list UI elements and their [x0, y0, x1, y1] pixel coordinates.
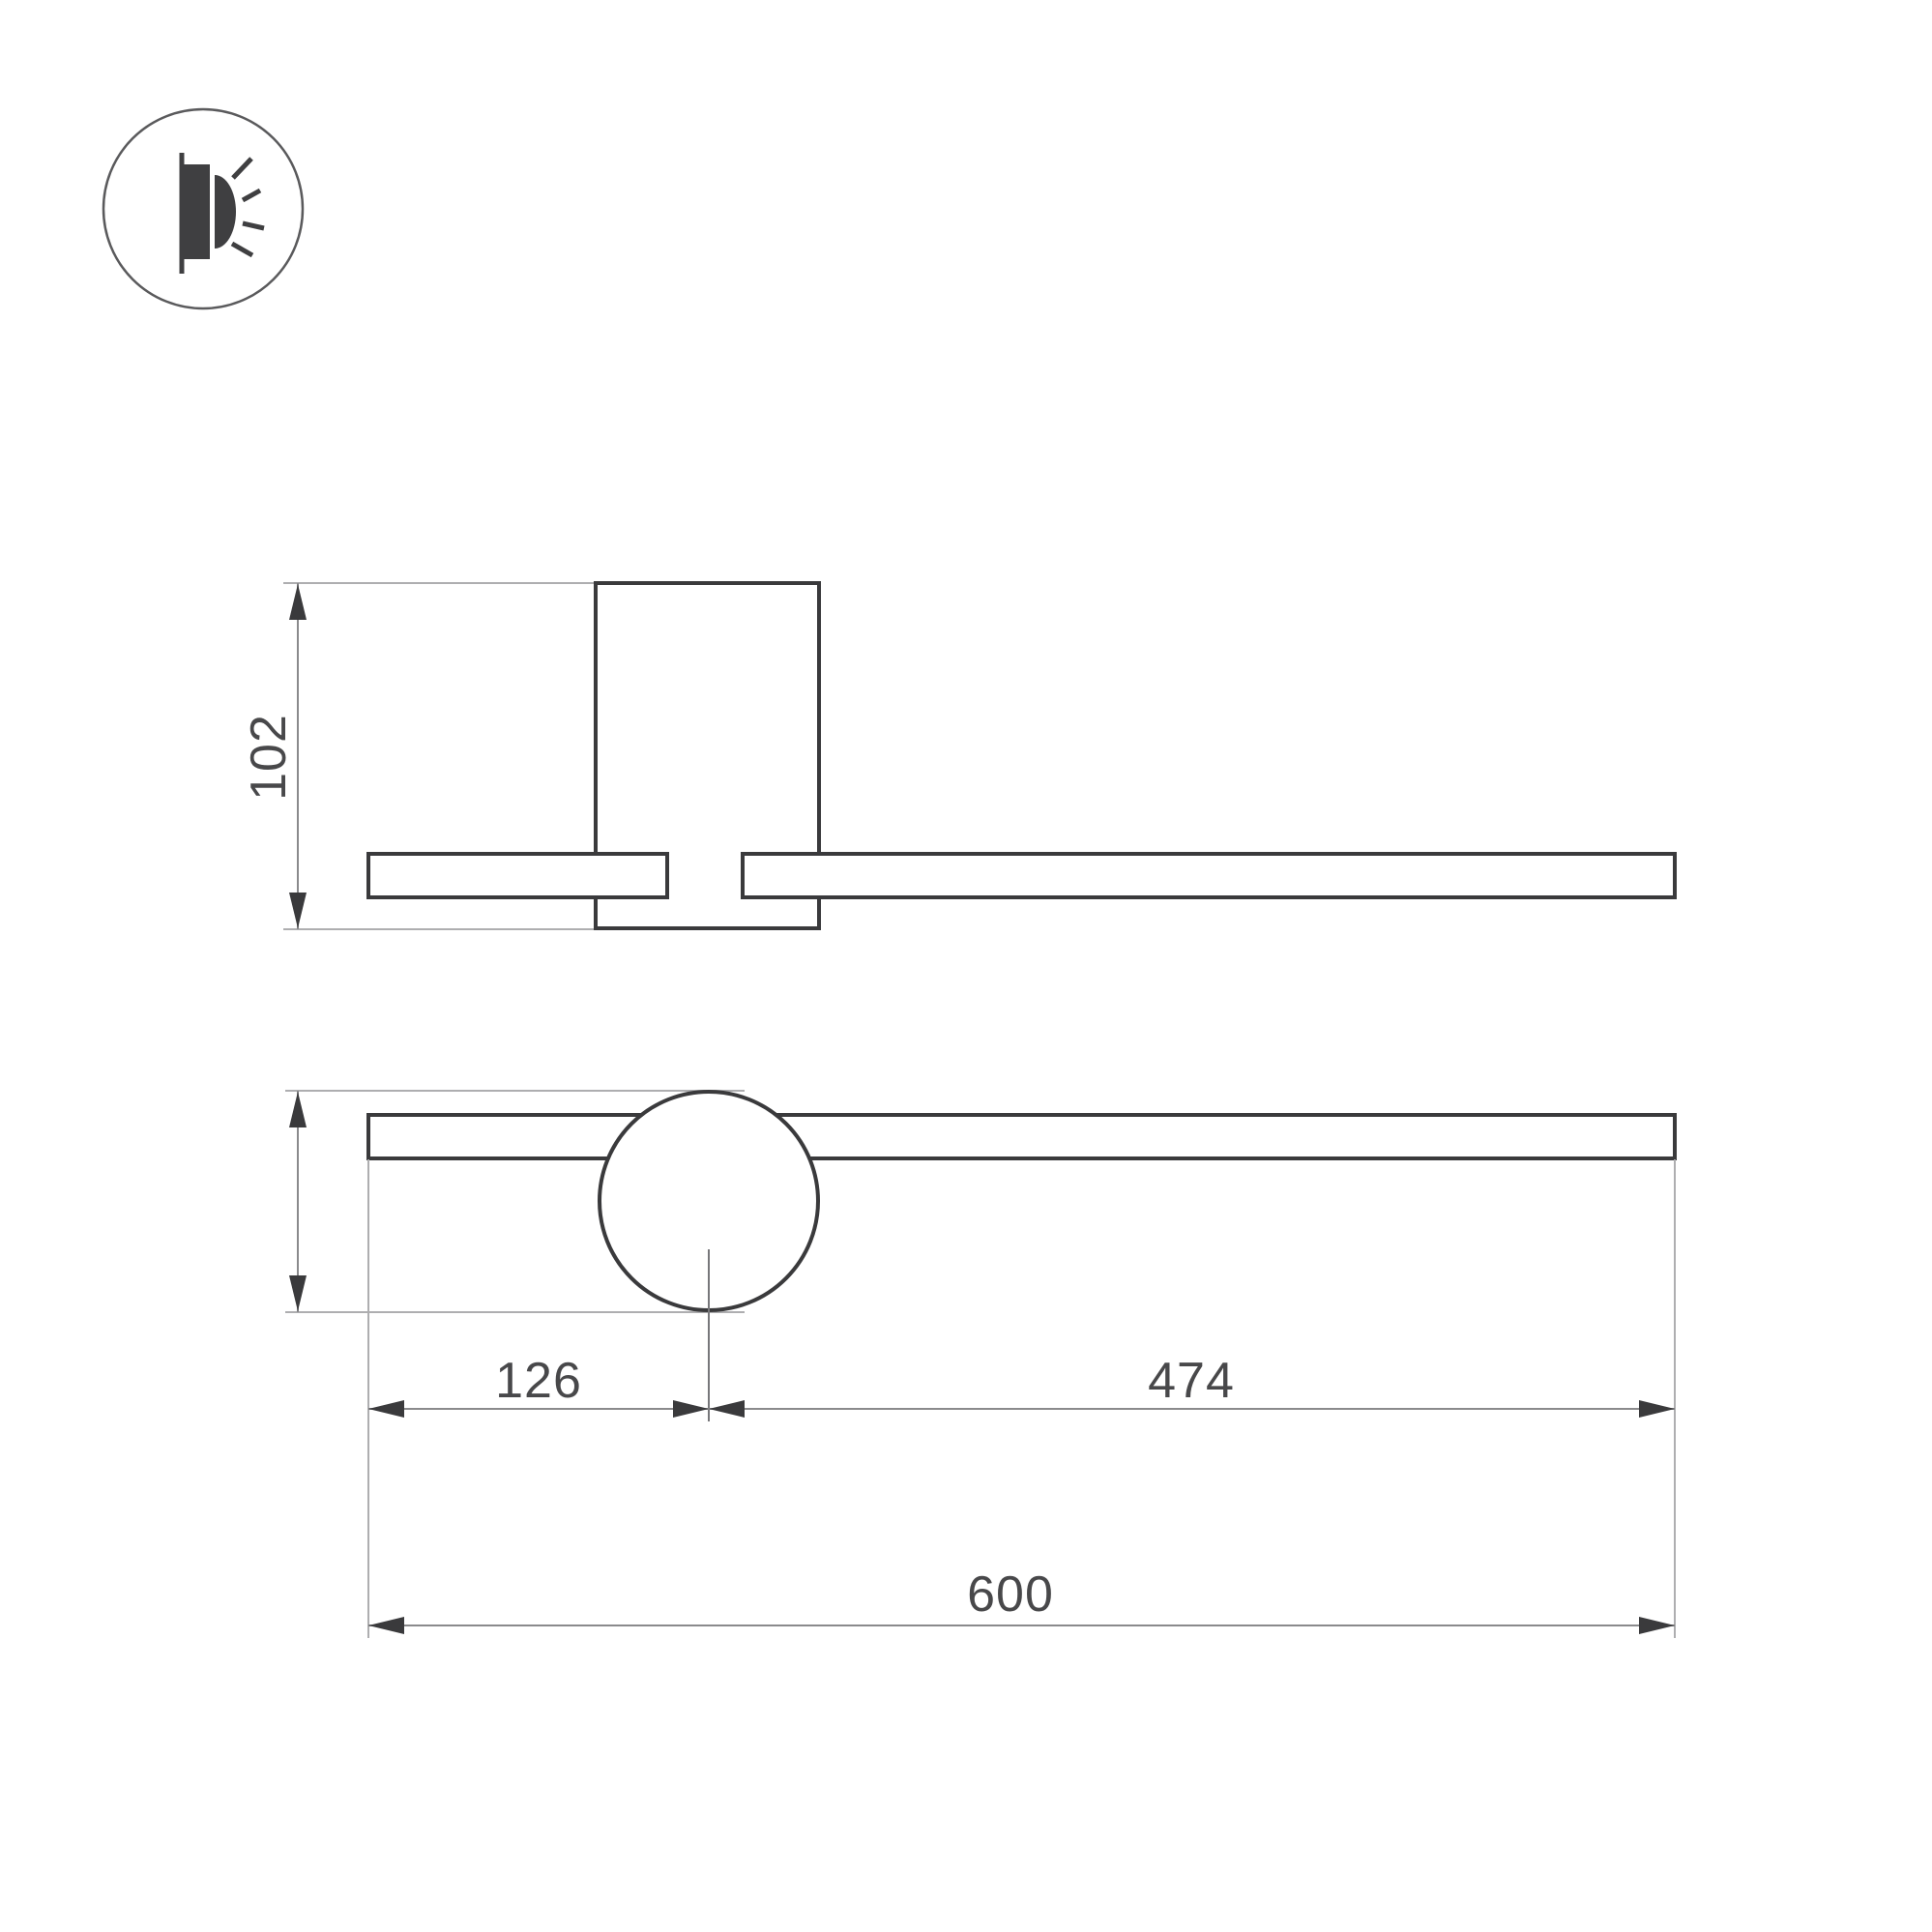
lamp-body-icon	[184, 164, 210, 259]
arrow-right-icon	[1639, 1400, 1675, 1418]
wall-light-icon	[103, 109, 303, 308]
front-view: 126 474 600	[285, 1091, 1675, 1638]
technical-drawing-canvas: 102 126 474 600	[0, 0, 1932, 1932]
arrow-down-icon	[289, 1275, 307, 1311]
arrow-left-icon	[368, 1617, 404, 1634]
arrow-left-icon	[709, 1400, 745, 1418]
light-bar-front	[368, 1115, 1675, 1158]
light-bar-right-segment	[743, 854, 1675, 897]
arrow-left-icon	[368, 1400, 404, 1418]
dimension-label-depth: 102	[241, 714, 297, 801]
dimension-label-offset-left: 126	[495, 1353, 582, 1409]
dimension-label-offset-right: 474	[1148, 1353, 1235, 1409]
arrow-down-icon	[289, 893, 307, 928]
light-bar-left-segment	[368, 854, 667, 897]
arrow-right-icon	[1639, 1617, 1675, 1634]
page: { "icon": { "name": "surface-wall-light-…	[0, 0, 1932, 1932]
arrow-up-icon	[289, 1092, 307, 1127]
arrow-right-icon	[673, 1400, 709, 1418]
drawing-page: 102 126 474 600	[0, 0, 1932, 1932]
dimension-label-length: 600	[967, 1566, 1054, 1623]
arrow-up-icon	[289, 584, 307, 620]
side-view: 102	[241, 583, 1675, 929]
